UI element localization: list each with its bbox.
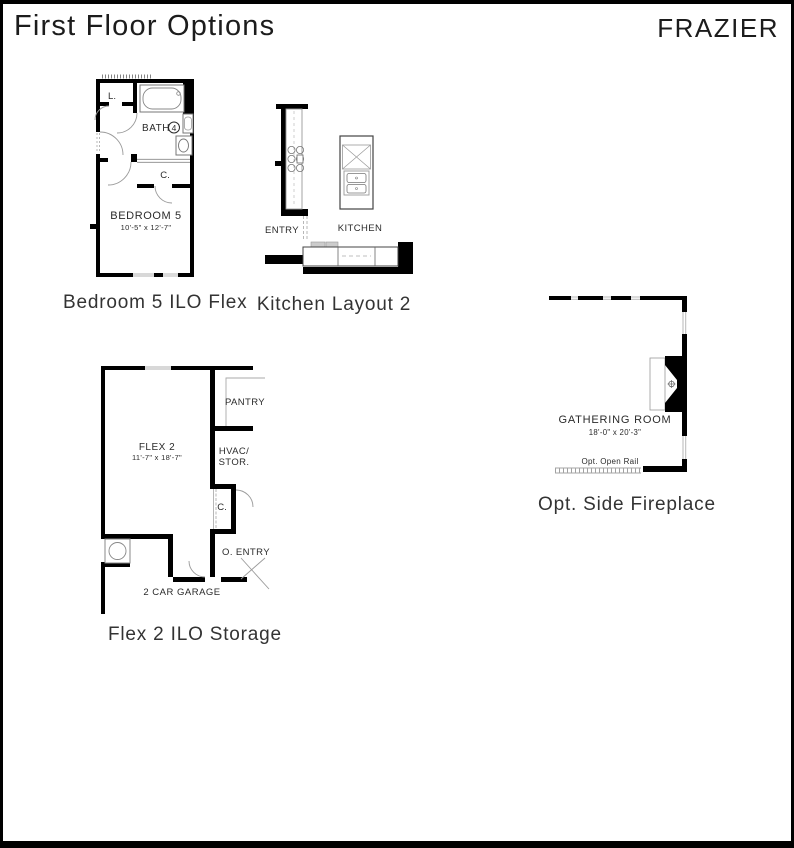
bath-label: BATH [142,123,170,134]
toilet-icon [176,136,192,155]
bath-number: 4 [172,123,177,133]
fireplace-floorplan-drawing: GATHERING ROOM 18'-0" x 20'-3" Opt. Open… [543,292,693,477]
open-rail-label: Opt. Open Rail [581,457,638,466]
garage-label: 2 CAR GARAGE [143,587,220,598]
closet-label: C. [160,170,170,181]
water-heater-icon [105,539,130,563]
bedroom5-dimensions: 10'-5" x 12'-7" [121,223,172,232]
kitchen-floorplan-drawing: ENTRY KITCHEN [258,99,418,284]
hvac-label-line1: HVAC/ [219,446,249,457]
kitchen-label: KITCHEN [338,223,383,234]
fireplace-icon [650,356,687,412]
flex-closet-shelf [214,489,217,529]
flex-room-label: FLEX 2 [139,442,175,453]
gathering-walls [549,296,687,472]
vanity-sink-icon [183,114,193,133]
flex-door-arcs [189,490,269,589]
plan-brand-name: FRAZIER [657,13,779,44]
open-rail [555,468,641,473]
gathering-room-label: GATHERING ROOM [558,414,671,426]
bedroom5-room-label: BEDROOM 5 [110,210,181,222]
flex-floorplan-drawing: PANTRY FLEX 2 11'-7" x 18'-7" HVAC/ STOR… [93,359,278,614]
fireplace-floorplan: GATHERING ROOM 18'-0" x 20'-3" Opt. Open… [543,292,693,477]
bedroom5-floorplan: L. BATH 4 C. BEDROOM 5 10'-5" x 12'-7" [88,72,208,287]
bathtub-icon [140,85,184,112]
cased-opening [97,133,99,153]
fireplace-caption: Opt. Side Fireplace [538,494,698,516]
kitchen-floorplan: ENTRY KITCHEN [258,99,418,284]
flex-floorplan: PANTRY FLEX 2 11'-7" x 18'-7" HVAC/ STOR… [93,359,278,614]
gathering-room-dimensions: 18'-0" x 20'-3" [589,428,641,437]
flex-window [145,367,171,369]
bedroom5-floorplan-drawing: L. BATH 4 C. BEDROOM 5 10'-5" x 12'-7" [88,72,208,287]
kitchen-caption: Kitchen Layout 2 [254,294,414,316]
flex-closet-label: C. [217,502,227,513]
kitchen-island [340,136,373,209]
entry-label: ENTRY [265,225,299,236]
floorplan-options-sheet: First Floor Options FRAZIER [0,0,794,848]
entry-opening [304,216,308,241]
owner-entry-label: O. ENTRY [222,547,270,558]
hvac-label-line2: STOR. [219,457,250,468]
linen-label: L. [108,91,116,102]
bedroom5-caption: Bedroom 5 ILO Flex [63,292,233,314]
flex-caption: Flex 2 ILO Storage [108,624,268,646]
page-title: First Floor Options [14,10,275,43]
pantry-label: PANTRY [225,397,265,408]
perimeter-counter [303,242,398,266]
closet-shelf [137,159,190,162]
flex-dimensions: 11'-7" x 18'-7" [132,453,182,462]
